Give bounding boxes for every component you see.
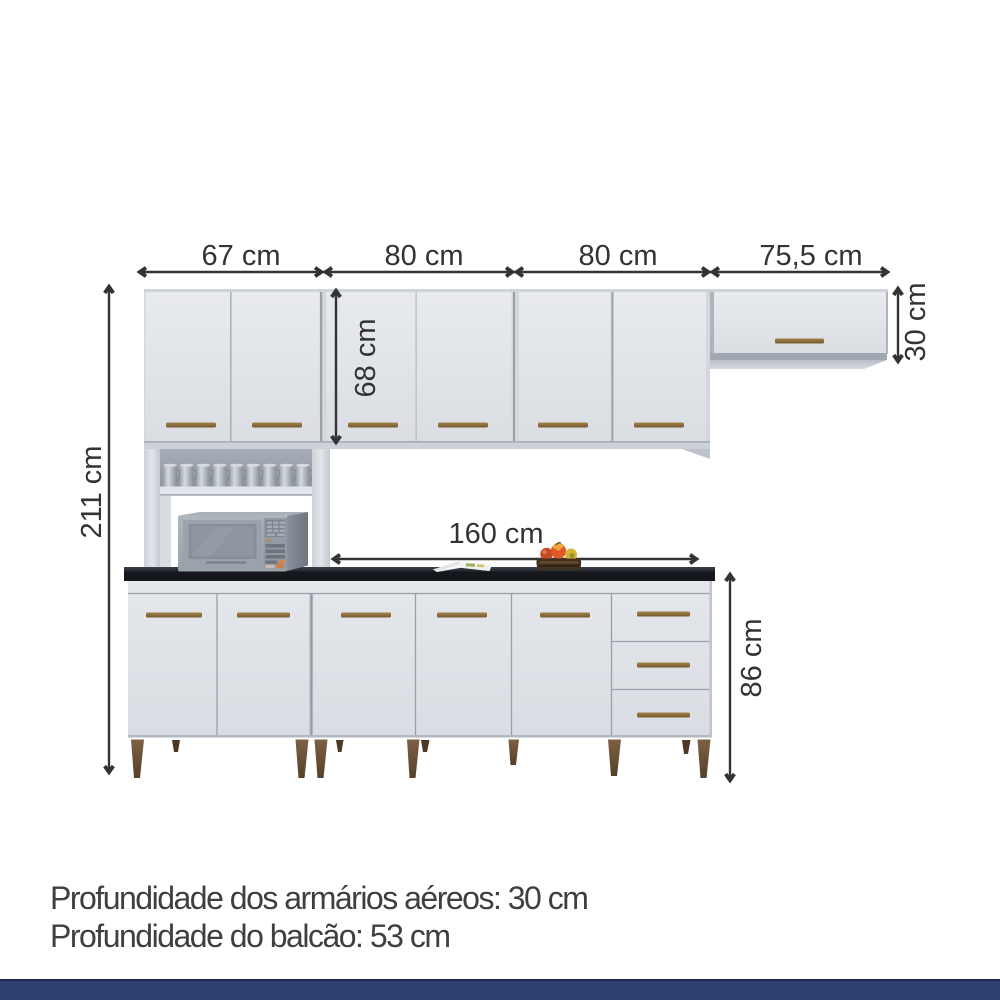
svg-text:75,5 cm: 75,5 cm — [759, 240, 862, 272]
svg-text:211 cm: 211 cm — [76, 446, 108, 539]
svg-text:68 cm: 68 cm — [350, 319, 382, 398]
svg-text:Profundidade do balcão: 53 cm: Profundidade do balcão: 53 cm — [50, 918, 449, 954]
svg-text:160 cm: 160 cm — [448, 518, 543, 550]
svg-text:80 cm: 80 cm — [385, 240, 464, 272]
svg-text:Profundidade dos armários aére: Profundidade dos armários aéreos: 30 cm — [50, 880, 587, 916]
svg-text:80 cm: 80 cm — [579, 240, 658, 272]
svg-text:30 cm: 30 cm — [900, 283, 932, 362]
svg-text:86 cm: 86 cm — [736, 619, 768, 698]
svg-text:67 cm: 67 cm — [202, 240, 281, 272]
